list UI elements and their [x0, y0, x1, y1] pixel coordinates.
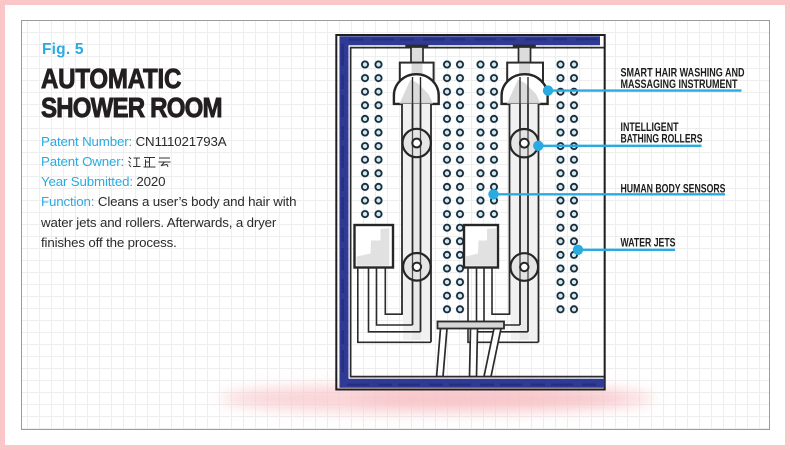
svg-text:WATER JETS: WATER JETS	[621, 236, 676, 250]
svg-text:MASSAGING INSTRUMENT: MASSAGING INSTRUMENT	[621, 77, 739, 91]
svg-text:BATHING ROLLERS: BATHING ROLLERS	[621, 132, 703, 146]
svg-text:HUMAN BODY SENSORS: HUMAN BODY SENSORS	[621, 182, 726, 196]
